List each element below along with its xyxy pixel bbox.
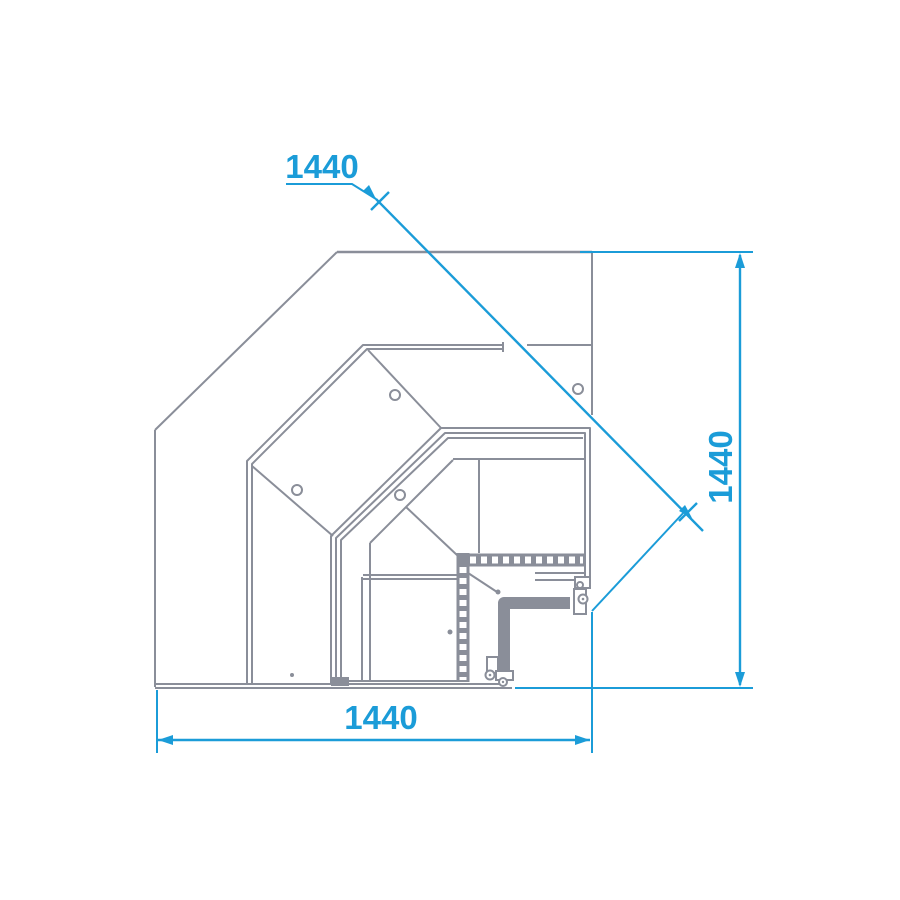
right-end-screw-1 — [577, 582, 583, 588]
arrowhead-diagonal-start — [363, 185, 376, 199]
corner-counter-plan-drawing: 1440 1440 1440 — [0, 0, 900, 900]
band-miter-lower — [252, 466, 333, 536]
bumper-l-profile — [504, 603, 570, 672]
front-bumper-band — [504, 603, 570, 672]
hole-band-upper — [390, 390, 400, 400]
dimension-label-horizontal: 1440 — [344, 699, 417, 736]
extension-line-corner — [592, 510, 686, 611]
arrowhead-left — [158, 735, 173, 745]
label-leader-line — [286, 184, 376, 199]
dot-base-left — [290, 673, 294, 677]
hole-band-lower — [292, 485, 302, 495]
hole-canopy-right — [573, 384, 583, 394]
dimension-line-diagonal — [376, 199, 703, 531]
hole-tank-corner — [395, 490, 405, 500]
right-end-screw-2-center — [582, 598, 585, 601]
dimension-label-diagonal: 1440 — [285, 148, 358, 185]
bottom-end-screw-2-center — [502, 681, 504, 683]
technical-drawing-page: 1440 1440 1440 — [0, 0, 900, 900]
base-joint-block — [331, 677, 349, 686]
dimension-label-vertical: 1440 — [702, 430, 739, 503]
arrowhead-right — [575, 735, 590, 745]
outline-chamfer-edge — [155, 252, 337, 430]
dot-bumper-corner — [496, 590, 501, 595]
band-miter-upper — [368, 350, 441, 428]
corner-miter-inner-1 — [406, 507, 458, 556]
glass-front-band — [247, 342, 592, 684]
arrowhead-down — [735, 672, 745, 687]
counter-outline — [155, 252, 592, 688]
bottom-end-screw-1-center — [489, 674, 492, 677]
dot-tank-front — [448, 630, 453, 635]
dimension-diagonal: 1440 — [285, 148, 703, 611]
arrowhead-up — [735, 253, 745, 268]
dimension-vertical-right: 1440 — [515, 252, 753, 688]
dimension-horizontal-bottom: 1440 — [157, 612, 592, 753]
